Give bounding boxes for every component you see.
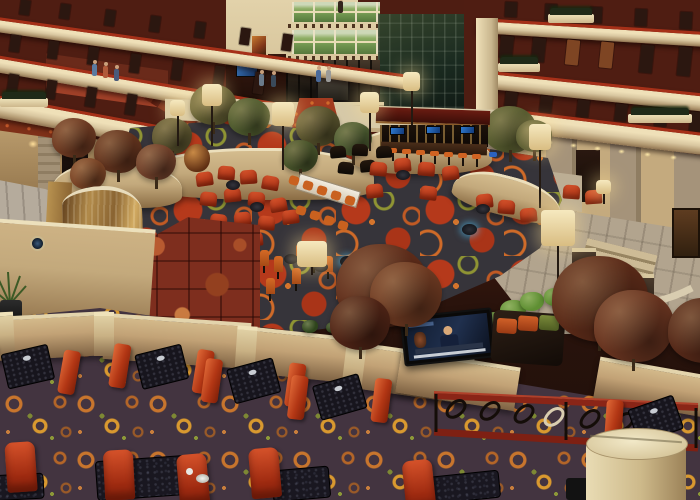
atrium-window-lower [292,30,380,54]
wood-kiosk [672,208,700,258]
sofa-cushion [518,315,539,331]
coffee-cup [186,468,193,475]
hotel-atrium-photo: Photograph of a multi-storey hotel atriu… [0,0,700,500]
plate [196,474,209,483]
tv-graphic-bar [409,322,434,329]
terrace-tv [400,307,497,366]
wall-emblem [30,236,45,251]
tv-figure-left [413,331,427,348]
glass-curtain-wall [378,14,464,122]
drum-lamp-table [586,440,686,500]
dentil-trim [288,24,384,28]
sofa-pillow-green [539,315,560,331]
sofa-cushion [496,318,517,334]
atrium-window-upper [292,2,380,22]
tv-screen [405,313,491,361]
blue-stool [489,152,497,157]
terrace-sofa [490,310,565,367]
